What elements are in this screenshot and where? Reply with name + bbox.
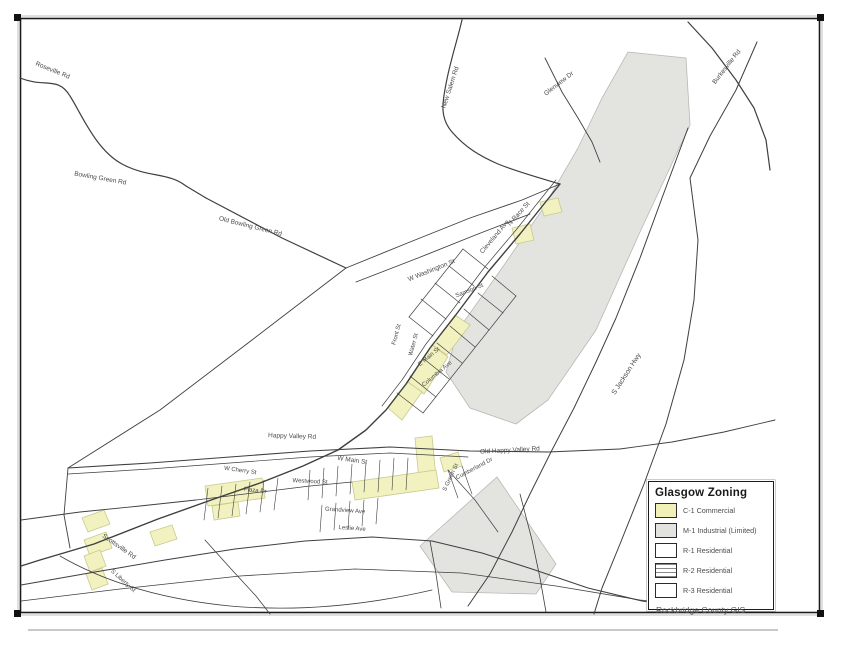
road-label-2: Old Bowling Green Rd [218, 215, 283, 238]
legend-swatch-2 [655, 543, 677, 558]
corner-mark-0 [14, 14, 21, 21]
road-54 [320, 505, 322, 532]
road-14 [620, 420, 775, 449]
corner-mark-2 [14, 610, 21, 617]
legend-label-2: R-1 Residential [683, 546, 732, 555]
legend-items: C-1 CommercialM-1 Industrial (Limited)R-… [654, 503, 768, 598]
road-20 [205, 540, 270, 614]
commercial-strip-12 [150, 525, 177, 546]
corner-mark-3 [817, 610, 824, 617]
road-label-24: S Liberty St [109, 569, 136, 594]
road-label-11: Front St [391, 323, 402, 345]
legend-row-0: C-1 Commercial [655, 503, 768, 518]
legend-label-1: M-1 Industrial (Limited) [683, 526, 757, 535]
legend-swatch-0 [655, 503, 677, 518]
commercial-strip-13 [84, 550, 106, 572]
industrial-zone-north [446, 52, 690, 424]
road-label-12: Water St [408, 332, 420, 356]
road-15 [64, 468, 70, 548]
legend-row-3: R-2 Residential [655, 563, 768, 578]
legend-swatch-3 [655, 563, 677, 578]
road-label-1: Bowling Green Rd [74, 170, 128, 186]
commercial-patch-4 [512, 224, 534, 244]
commercial-strip-10 [82, 510, 110, 532]
road-label-16: Old Happy Valley Rd [480, 445, 541, 455]
legend-box: Glasgow Zoning C-1 CommercialM-1 Industr… [648, 481, 774, 610]
page-shadow-line [28, 629, 778, 631]
road-38 [308, 470, 310, 500]
road-16 [21, 500, 196, 520]
road-58 [376, 498, 378, 524]
road-label-21: Grandview Ave [325, 507, 366, 516]
road-33 [449, 266, 474, 286]
road-label-4: Glenview Dr [543, 70, 576, 98]
road-label-25: Westwood St [292, 478, 328, 486]
map-page: Roseville RdBowling Green RdOld Bowling … [0, 0, 841, 650]
road-13 [68, 453, 468, 474]
legend-row-2: R-1 Residential [655, 543, 768, 558]
road-label-3: New Salem Rd [441, 65, 461, 109]
road-53 [274, 478, 278, 510]
legend-label-3: R-2 Residential [683, 566, 732, 575]
road-label-26: Cumberland Dr [455, 457, 494, 481]
road-label-10: S Jackson Hwy [611, 352, 643, 396]
corner-mark-1 [817, 14, 824, 21]
legend-label-4: R-3 Residential [683, 586, 732, 595]
legend-label-0: C-1 Commercial [683, 506, 735, 515]
road-35 [421, 299, 446, 319]
legend-title: Glasgow Zoning [655, 487, 768, 499]
road-label-15: Happy Valley Rd [268, 432, 317, 441]
road-label-18: W Cherry St [224, 466, 258, 477]
road-5 [443, 20, 560, 184]
road-label-22: Leslie Ave [338, 525, 366, 533]
road-label-17: W Main St [337, 455, 368, 466]
road-19 [60, 556, 432, 608]
road-56 [348, 501, 350, 528]
road-36 [409, 317, 433, 336]
legend-swatch-4 [655, 583, 677, 598]
legend-row-1: M-1 Industrial (Limited) [655, 523, 768, 538]
road-label-0: Roseville Rd [34, 61, 71, 81]
legend-row-4: R-3 Residential [655, 583, 768, 598]
road-41 [350, 464, 352, 494]
legend-swatch-1 [655, 523, 677, 538]
attribution-text: Rockbridge County GIS [656, 605, 745, 615]
road-label-7: W Washington St [407, 258, 456, 283]
road-18 [21, 569, 722, 608]
road-40 [336, 466, 338, 496]
road-7 [688, 22, 770, 170]
